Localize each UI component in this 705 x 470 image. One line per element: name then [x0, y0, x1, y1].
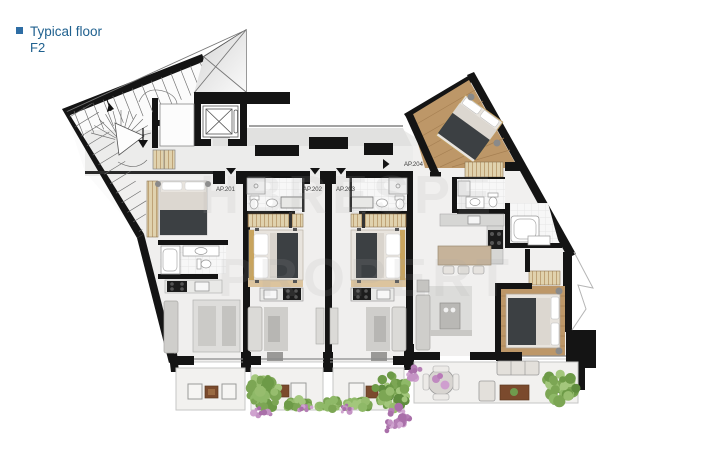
svg-text:Typical floor: Typical floor: [30, 24, 103, 39]
svg-text:F2: F2: [30, 40, 45, 55]
svg-text:HBRESPE: HBRESPE: [200, 165, 496, 225]
svg-text:PROPERT: PROPERT: [218, 248, 514, 308]
